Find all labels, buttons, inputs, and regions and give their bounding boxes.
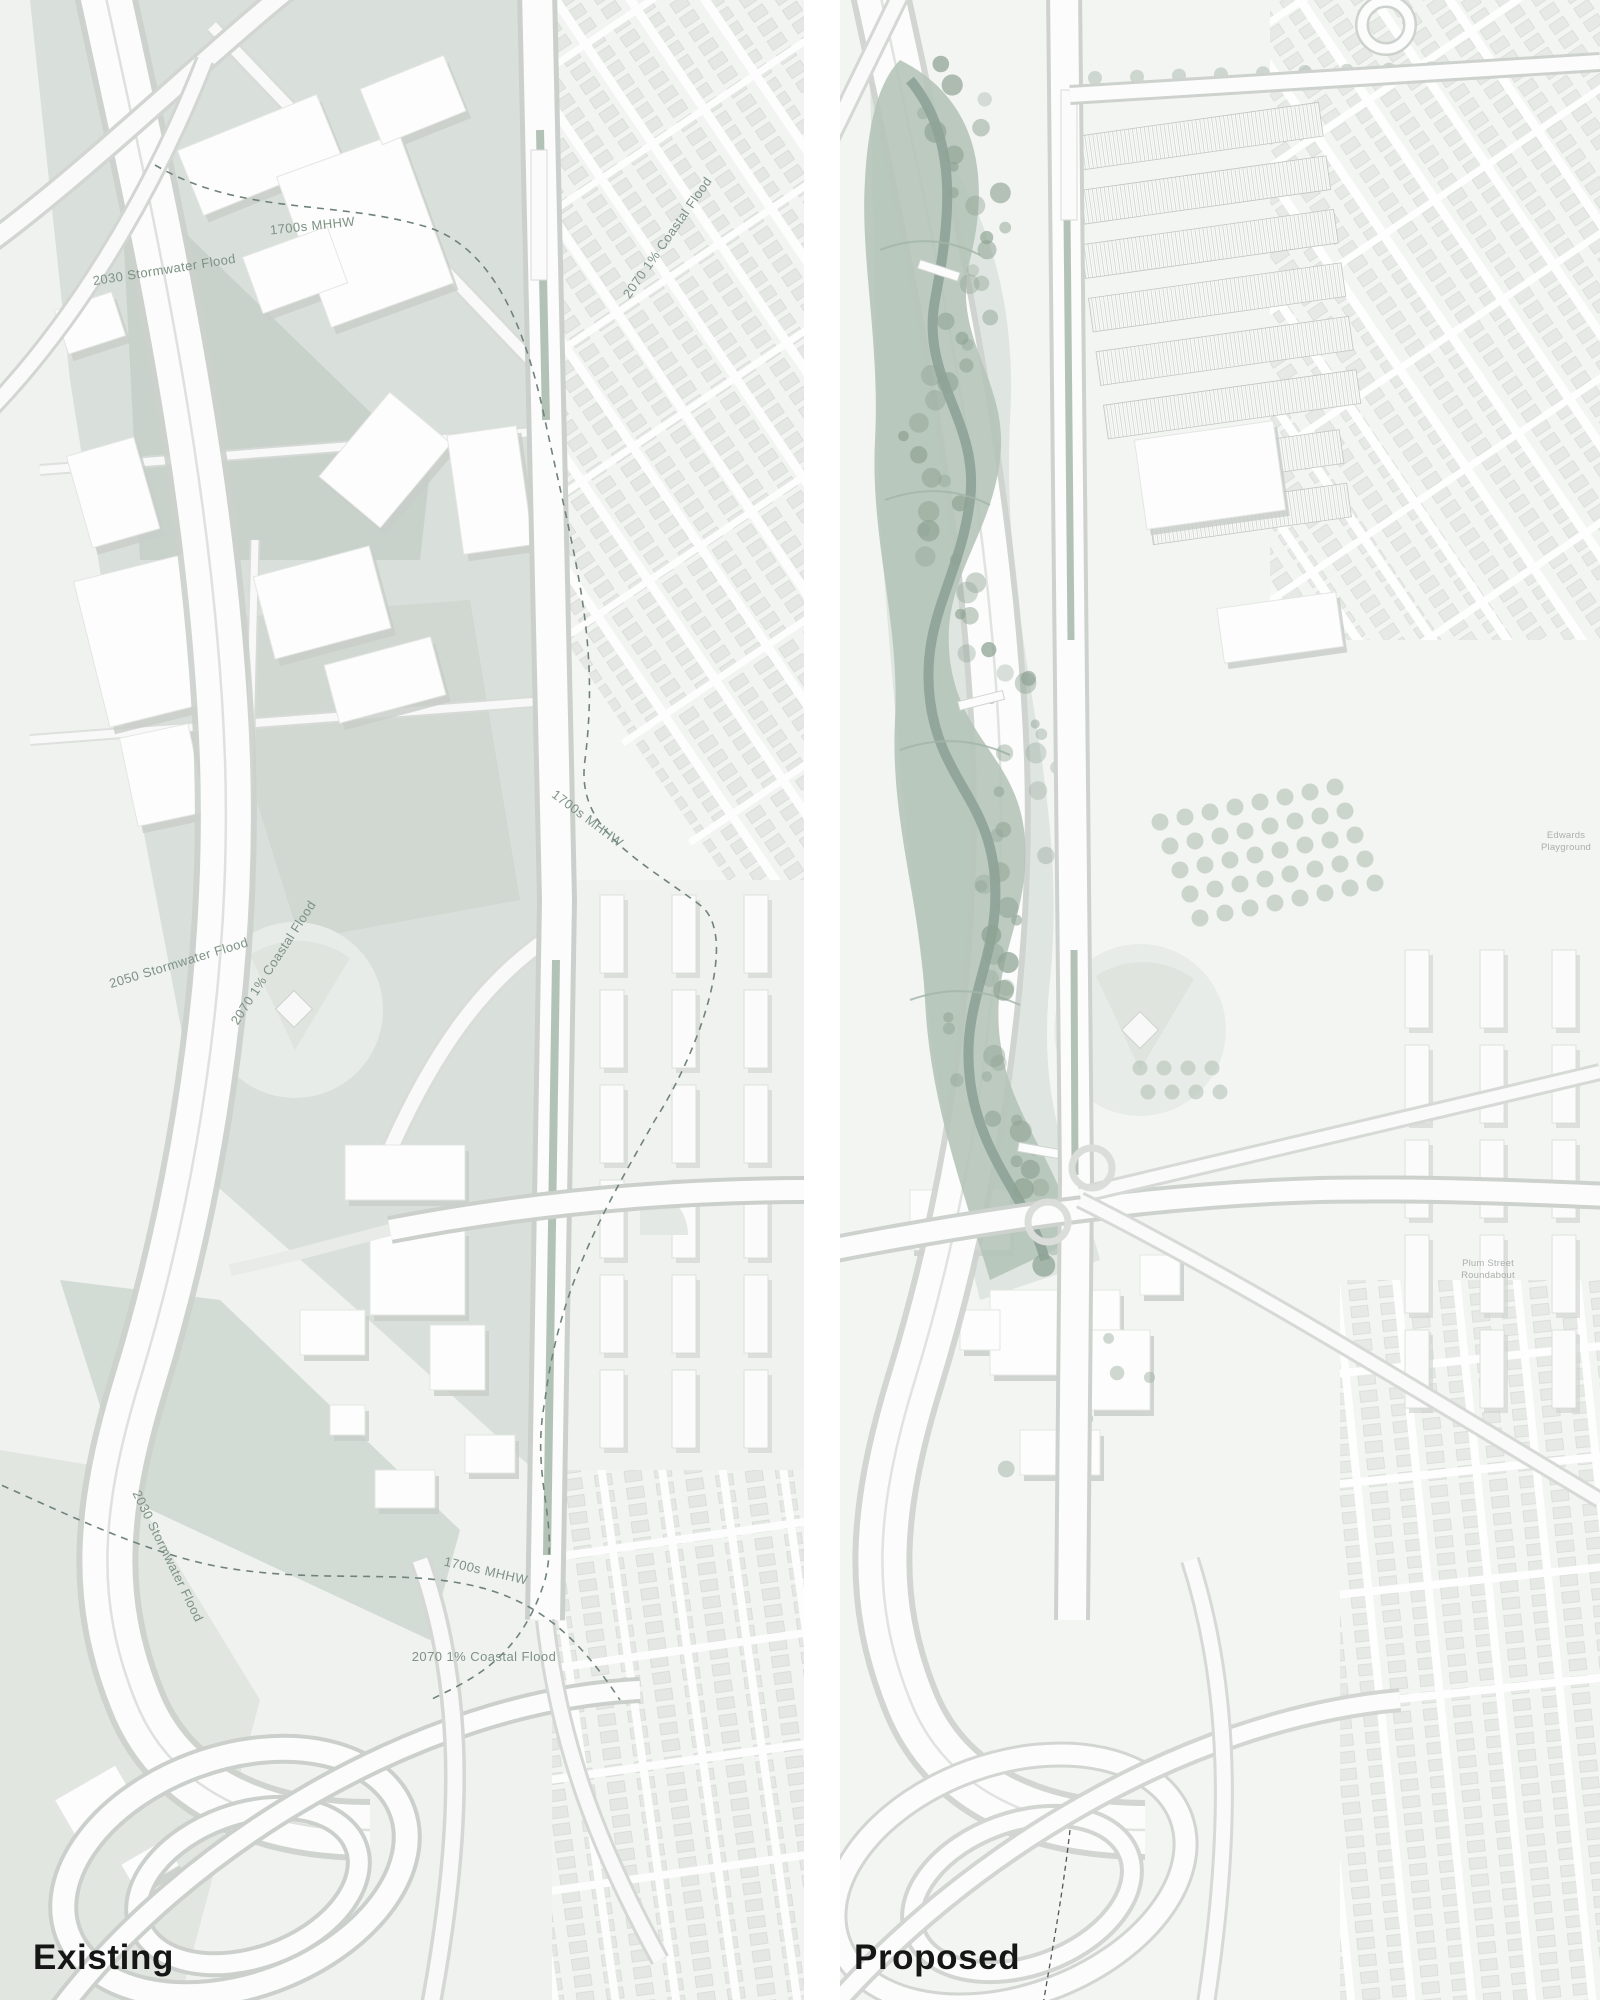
existing-vs-proposed-map-figure: 2030 Stormwater Flood 1700s MHHW 2070 1%… (0, 0, 1600, 2000)
proposed-title: Proposed (854, 1938, 1020, 1978)
existing-title: Existing (33, 1938, 174, 1978)
playground-label-line2: Playground (1541, 842, 1591, 853)
roundabout-label-line1: Plum Street (1462, 1258, 1514, 1269)
playground-label-line1: Edwards (1547, 830, 1585, 841)
roundabout-label-line2: Roundabout (1461, 1270, 1515, 1281)
existing-map-panel: 2030 Stormwater Flood 1700s MHHW 2070 1%… (0, 0, 804, 2000)
existing-map: 2030 Stormwater Flood 1700s MHHW 2070 1%… (0, 0, 804, 2000)
proposed-map-panel: Edwards Playground Plum Street Roundabou… (840, 0, 1600, 2000)
light-rail-platform (1061, 90, 1077, 220)
light-rail-platform (531, 150, 547, 280)
flood-label-coastal-2070: 2070 1% Coastal Flood (412, 1649, 557, 1664)
proposed-map: Edwards Playground Plum Street Roundabou… (840, 0, 1600, 2000)
